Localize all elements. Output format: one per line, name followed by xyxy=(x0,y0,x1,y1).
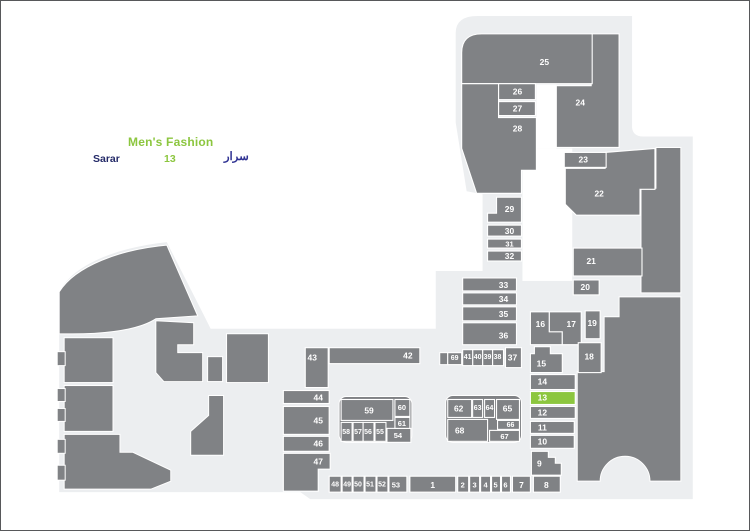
unit-56[interactable]: 56 xyxy=(363,422,374,441)
unit-13-label: 13 xyxy=(538,393,548,403)
unit-10-label: 10 xyxy=(538,436,548,446)
unit-9-label: 9 xyxy=(537,458,542,468)
unit-65-label: 65 xyxy=(503,403,513,413)
unit-68-label: 68 xyxy=(455,425,465,435)
unit-64-label: 64 xyxy=(486,405,494,412)
unit-52[interactable]: 52 xyxy=(377,476,388,492)
legend-store-name-ar: سرار xyxy=(224,149,249,163)
unit-40[interactable]: 40 xyxy=(473,350,483,366)
unit-27-label: 27 xyxy=(513,104,523,114)
mall-directory-page: 1234567891011121314151617181920212223242… xyxy=(0,0,750,531)
unit-7[interactable]: 7 xyxy=(512,476,530,492)
unit-47-label: 47 xyxy=(314,456,324,466)
unit-59[interactable]: 59 xyxy=(341,399,393,420)
structure-block xyxy=(208,357,223,382)
unit-37[interactable]: 37 xyxy=(506,348,522,368)
unit-52-label: 52 xyxy=(378,482,386,489)
legend-store-name-en: Sarar xyxy=(93,153,120,165)
unit-8-label: 8 xyxy=(544,480,549,490)
unit-58[interactable]: 58 xyxy=(341,422,352,441)
structure-block xyxy=(57,439,65,453)
unit-49-label: 49 xyxy=(343,482,351,489)
unit-35[interactable]: 35 xyxy=(463,307,517,321)
unit-48-label: 48 xyxy=(331,482,339,489)
unit-17-label: 17 xyxy=(567,319,577,329)
unit-3-label: 3 xyxy=(473,481,477,490)
unit-11-label: 11 xyxy=(538,422,547,432)
unit-34-label: 34 xyxy=(499,294,509,304)
unit-62-label: 62 xyxy=(454,403,464,413)
unit-67[interactable]: 67 xyxy=(490,430,520,441)
unit-23[interactable]: 23 xyxy=(564,152,606,167)
unit-13[interactable]: 13 xyxy=(530,392,575,405)
structure-block xyxy=(57,408,65,421)
unit-29-label: 29 xyxy=(505,204,515,214)
unit-66-label: 66 xyxy=(507,422,515,429)
unit-25-shape[interactable] xyxy=(462,34,593,84)
unit-36-label: 36 xyxy=(499,331,509,341)
unit-26-label: 26 xyxy=(513,87,523,97)
unit-69-label: 69 xyxy=(451,355,459,362)
unit-28-label: 28 xyxy=(513,124,523,134)
unit-42[interactable]: 42 xyxy=(329,348,420,364)
unit-31[interactable]: 31 xyxy=(488,239,522,248)
unit-51-label: 51 xyxy=(366,482,374,489)
unit-10[interactable]: 10 xyxy=(530,435,574,448)
unit-54[interactable]: 54 xyxy=(387,428,411,442)
unit-64[interactable]: 64 xyxy=(485,399,495,417)
unit-61-label: 61 xyxy=(398,419,406,428)
unit-53-label: 53 xyxy=(392,481,400,490)
unit-3[interactable]: 3 xyxy=(470,476,480,492)
unit-57-label: 57 xyxy=(354,429,362,436)
unit-21-label: 21 xyxy=(586,256,596,266)
unit-46-label: 46 xyxy=(314,438,324,448)
unit-62[interactable]: 62 xyxy=(448,399,472,417)
unit-39-label: 39 xyxy=(484,354,492,361)
unit-6[interactable]: 6 xyxy=(502,476,511,492)
unit-43-label: 43 xyxy=(308,353,318,363)
unit-33-shape[interactable] xyxy=(463,278,517,291)
unit-54-label: 54 xyxy=(394,431,403,440)
unit-36-shape[interactable] xyxy=(463,323,517,345)
unit-61[interactable]: 61 xyxy=(395,417,410,428)
unit-39[interactable]: 39 xyxy=(483,350,493,366)
unit-41-label: 41 xyxy=(464,354,472,361)
unit-43[interactable]: 43 xyxy=(305,348,328,388)
unit-22-label: 22 xyxy=(594,188,604,198)
unit-11[interactable]: 11 xyxy=(530,421,574,433)
unit-36[interactable]: 36 xyxy=(463,323,517,345)
unit-16-label: 16 xyxy=(536,319,546,329)
structure-block xyxy=(57,352,65,366)
unit-63[interactable]: 63 xyxy=(473,399,483,417)
structure-block xyxy=(440,353,448,365)
unit-38-label: 38 xyxy=(494,354,502,361)
unit-25[interactable]: 25 xyxy=(462,34,593,84)
unit-8[interactable]: 8 xyxy=(533,476,560,492)
unit-65[interactable]: 65 xyxy=(497,399,520,419)
unit-35-shape[interactable] xyxy=(463,307,517,321)
structure-block xyxy=(64,338,113,383)
unit-2-label: 2 xyxy=(461,481,465,490)
unit-45[interactable]: 45 xyxy=(283,406,329,434)
unit-44[interactable]: 44 xyxy=(283,391,329,404)
unit-19-label: 19 xyxy=(587,318,597,328)
unit-23-label: 23 xyxy=(579,154,589,164)
unit-24-label: 24 xyxy=(576,98,586,108)
unit-49[interactable]: 49 xyxy=(342,476,352,492)
legend-category: Men's Fashion xyxy=(128,135,213,149)
unit-34-shape[interactable] xyxy=(463,293,517,305)
unit-1-label: 1 xyxy=(430,480,435,490)
unit-41[interactable]: 41 xyxy=(463,350,473,366)
unit-30-label: 30 xyxy=(505,226,515,236)
unit-12-label: 12 xyxy=(538,407,548,417)
unit-5[interactable]: 5 xyxy=(492,476,501,492)
structure-block xyxy=(227,334,269,383)
unit-55-label: 55 xyxy=(376,429,384,436)
unit-48[interactable]: 48 xyxy=(329,476,341,492)
unit-33[interactable]: 33 xyxy=(463,278,517,291)
unit-18-label: 18 xyxy=(584,352,594,362)
unit-31-label: 31 xyxy=(505,240,513,249)
unit-40-label: 40 xyxy=(474,354,482,361)
unit-25-label: 25 xyxy=(540,57,550,67)
unit-2[interactable]: 2 xyxy=(458,476,469,492)
unit-57[interactable]: 57 xyxy=(353,422,363,441)
unit-45-label: 45 xyxy=(314,415,324,425)
unit-53[interactable]: 53 xyxy=(389,476,407,492)
structure-block xyxy=(64,386,113,432)
mall-floor-plan: 1234567891011121314151617181920212223242… xyxy=(1,1,749,530)
unit-68-shape[interactable] xyxy=(448,419,488,441)
unit-68[interactable]: 68 xyxy=(448,419,488,441)
unit-4[interactable]: 4 xyxy=(481,476,491,492)
unit-18[interactable]: 18 xyxy=(578,343,601,373)
unit-63-label: 63 xyxy=(474,405,482,412)
unit-21-shape[interactable] xyxy=(573,248,642,276)
unit-14-label: 14 xyxy=(538,377,548,387)
unit-5-label: 5 xyxy=(493,481,497,490)
unit-50[interactable]: 50 xyxy=(353,476,364,492)
courtyard-cutout xyxy=(536,85,556,149)
structure-block xyxy=(57,389,65,402)
unit-15-label: 15 xyxy=(537,359,547,369)
unit-46[interactable]: 46 xyxy=(283,436,329,451)
unit-26[interactable]: 26 xyxy=(499,84,536,100)
unit-20-label: 20 xyxy=(581,282,591,292)
unit-19[interactable]: 19 xyxy=(585,311,600,339)
legend-unit-number: 13 xyxy=(164,153,176,165)
unit-59-label: 59 xyxy=(364,405,374,415)
unit-44-label: 44 xyxy=(314,393,324,403)
unit-37-label: 37 xyxy=(508,353,518,363)
unit-21[interactable]: 21 xyxy=(573,248,642,276)
unit-7-label: 7 xyxy=(519,480,524,490)
unit-30[interactable]: 30 xyxy=(488,225,522,236)
unit-32-label: 32 xyxy=(505,251,515,261)
unit-14[interactable]: 14 xyxy=(530,375,575,390)
unit-12[interactable]: 12 xyxy=(530,406,575,418)
unit-51[interactable]: 51 xyxy=(365,476,376,492)
unit-69[interactable]: 69 xyxy=(448,353,462,365)
unit-66[interactable]: 66 xyxy=(498,420,520,429)
unit-35-label: 35 xyxy=(499,309,509,319)
unit-58-label: 58 xyxy=(342,429,350,436)
unit-60[interactable]: 60 xyxy=(395,399,410,416)
unit-38[interactable]: 38 xyxy=(493,350,504,366)
unit-32[interactable]: 32 xyxy=(488,251,522,261)
unit-67-label: 67 xyxy=(500,432,508,441)
unit-6-label: 6 xyxy=(503,481,507,490)
unit-33-label: 33 xyxy=(499,280,509,290)
unit-27[interactable]: 27 xyxy=(499,102,536,116)
unit-56-label: 56 xyxy=(364,429,372,436)
unit-1[interactable]: 1 xyxy=(410,476,456,492)
unit-20[interactable]: 20 xyxy=(573,280,599,295)
unit-50-label: 50 xyxy=(354,482,362,489)
unit-55[interactable]: 55 xyxy=(375,422,386,441)
unit-60-label: 60 xyxy=(398,403,406,412)
unit-42-label: 42 xyxy=(403,351,413,361)
structure-block xyxy=(57,465,65,480)
unit-34[interactable]: 34 xyxy=(463,293,517,305)
